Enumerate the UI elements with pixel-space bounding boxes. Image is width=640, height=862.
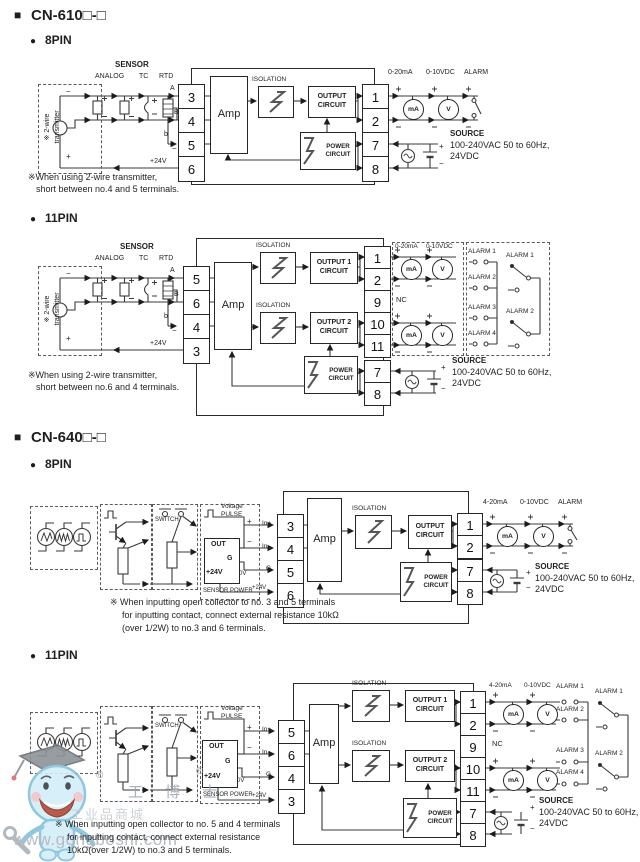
rtd-a-label: A — [170, 267, 175, 275]
output1-circuit-block: OUTPUT 1 CIRCUIT — [310, 252, 358, 284]
terminal-1: 1 — [362, 84, 389, 110]
terminal-3: 3 — [183, 338, 210, 364]
alarm2-contact-label: ALARM 2 — [468, 274, 496, 281]
terminal-6: 6 — [183, 290, 210, 316]
ma-meter: mA — [503, 770, 524, 791]
sensor-label: SENSOR — [115, 60, 149, 69]
isolation-zigzag-icon — [360, 754, 382, 778]
isolation-zigzag-icon — [267, 316, 289, 340]
terminal-10: 10 — [364, 312, 391, 336]
rtd-b-label: B — [174, 291, 179, 299]
source-line2: 24VDC — [452, 378, 481, 388]
in-plus-label: In+ — [262, 726, 271, 733]
polarity-plus: + — [247, 517, 252, 526]
power-circuit-block: POWER CIRCUIT — [403, 798, 457, 838]
cn640-square-marker: ■ — [14, 431, 21, 445]
transmitter-line2: transmitter — [53, 272, 63, 346]
terminal-6: 6 — [178, 156, 205, 182]
v-meter: V — [438, 99, 459, 120]
isolation-label: ISOLATION — [252, 76, 286, 83]
ma-meter: mA — [497, 526, 518, 547]
ma-meter: mA — [403, 99, 424, 120]
battery-icon — [514, 812, 528, 834]
terminal-7: 7 — [362, 132, 389, 158]
v-meter: V — [537, 770, 558, 791]
power-circuit-label: POWER CIRCUIT — [325, 367, 357, 383]
alarm-output-label: ALARM — [558, 499, 582, 507]
terminal-5: 5 — [278, 720, 305, 745]
power-circuit-label: POWER CIRCUIT — [421, 574, 451, 590]
power-zigzag-icon — [404, 801, 424, 835]
current-output-label: 0-20mA — [395, 243, 418, 250]
note-line2: short between no.4 and 5 terminals. — [36, 184, 179, 194]
alarm1-contact-label: ALARM 1 — [468, 248, 496, 255]
two-wire-transmitter-label: ※ 2-wire transmitter — [43, 272, 62, 346]
polarity-minus: − — [441, 384, 446, 393]
terminal-2: 2 — [362, 108, 389, 134]
g-label: G — [227, 555, 232, 563]
two-wire-transmitter-label: ※ 2-wire transmitter — [43, 90, 62, 164]
note-line1: ※ When inputting open collector to no. 3… — [110, 597, 335, 607]
plus24v-box-label: +24V — [204, 773, 221, 781]
source-line2: 24VDC — [539, 818, 568, 828]
terminal-7: 7 — [457, 559, 483, 583]
polarity-minus: − — [439, 159, 444, 168]
terminal-9: 9 — [460, 735, 486, 759]
terminal-5: 5 — [183, 266, 210, 292]
isolation-label: ISOLATION — [256, 302, 290, 309]
source-title: SOURCE — [452, 356, 486, 365]
power-zigzag-icon — [305, 359, 325, 391]
terminal-6: 6 — [278, 743, 305, 768]
terminal-1: 1 — [457, 513, 483, 537]
bullet-icon: ● — [30, 36, 36, 48]
amp-block: Amp — [307, 498, 342, 582]
isolation-zigzag-icon — [267, 256, 289, 280]
alarm2-contact-label: ALARM 2 — [556, 706, 584, 713]
rtd-label: RTD — [159, 73, 173, 81]
v-meter: V — [537, 704, 558, 725]
alarm-output-label: ALARM — [464, 69, 488, 77]
terminal-9: 9 — [364, 290, 391, 314]
isolation-label: ISOLATION — [352, 740, 386, 747]
transmitter-line1: ※ 2-wire — [43, 272, 53, 346]
g-label: G — [225, 758, 230, 766]
cn640-8pin-heading: 8PIN — [45, 458, 72, 472]
isolation-zigzag-icon — [265, 90, 287, 114]
note-line1: ※When using 2-wire transmitter, — [28, 370, 157, 380]
alarm1-contact-label: ALARM 1 — [556, 683, 584, 690]
terminal-5: 5 — [178, 132, 205, 158]
output-circuit-block: OUTPUT CIRCUIT — [308, 86, 356, 118]
switch-label: SWITCH — [155, 723, 179, 730]
plus24v-box-label: +24V — [206, 569, 223, 577]
isolation-block — [260, 312, 296, 344]
terminal-8: 8 — [457, 581, 483, 605]
note-line2: short between no.6 and 4 terminals. — [36, 382, 179, 392]
plus24v-pin-label: +24V — [252, 793, 266, 800]
note-line1: ※When using 2-wire transmitter, — [28, 172, 157, 182]
polarity-minus: − — [526, 583, 531, 592]
source-line1: 100-240VAC 50 to 60Hz, — [539, 807, 638, 817]
v-meter: V — [432, 259, 453, 280]
voltage-pulse-label-line2: PULSE — [221, 713, 242, 720]
power-circuit-label: POWER CIRCUIT — [424, 810, 456, 826]
power-zigzag-icon — [401, 565, 421, 599]
cn610-square-marker: ■ — [14, 9, 21, 23]
polarity-plus: + — [247, 723, 252, 732]
g-pin-label: G — [266, 771, 271, 778]
rtd-a-label: A — [170, 85, 175, 93]
open-collector-dashed-box — [100, 504, 152, 590]
plus24v-label: +24V — [150, 158, 167, 166]
rtd-b-label: B — [174, 109, 179, 117]
terminal-10: 10 — [460, 757, 486, 781]
cn610-11pin-heading: 11PIN — [45, 212, 78, 226]
rtd-b-lower-label: b — [164, 131, 168, 139]
polarity-plus: + — [530, 803, 535, 812]
wiring-diagram-page: ■ CN-610□-□ ● 8PIN ※ 2-wire transmitter … — [0, 0, 640, 862]
isolation-block — [258, 86, 294, 118]
zero-v-label: 0V — [239, 571, 246, 578]
source-line1: 100-240VAC 50 to 60Hz, — [450, 140, 549, 150]
isolation-block — [355, 515, 392, 549]
zero-v-label: 0V — [237, 778, 244, 785]
polarity-plus: + — [526, 568, 531, 577]
terminal-11: 11 — [364, 334, 391, 358]
v-meter: V — [533, 526, 554, 547]
v-meter: V — [432, 325, 453, 346]
rtd-b-lower-label: b — [164, 313, 168, 321]
power-circuit-block: POWER CIRCUIT — [304, 356, 358, 394]
signal-sources-dashed-box — [30, 506, 98, 570]
cn640-11pin-heading: 11PIN — [45, 649, 78, 663]
source-line2: 24VDC — [450, 151, 479, 161]
current-output-label: 4-20mA — [483, 499, 508, 507]
in-minus-label: In- — [262, 749, 270, 756]
alarm3-contact-label: ALARM 3 — [556, 747, 584, 754]
amp-block: Amp — [309, 704, 339, 784]
polarity-minus: − — [247, 743, 252, 752]
battery-icon — [510, 570, 524, 592]
output2-circuit-block: OUTPUT 2 CIRCUIT — [405, 750, 455, 782]
terminal-8: 8 — [362, 156, 389, 182]
amp-block: Amp — [210, 76, 248, 154]
note-line2: for inputting contact, connect external … — [67, 832, 260, 842]
tc-label: TC — [139, 73, 148, 81]
source-title: SOURCE — [535, 562, 569, 571]
terminal-2: 2 — [364, 268, 391, 292]
isolation-block — [260, 252, 296, 284]
in-minus-label: In- — [262, 543, 270, 550]
terminal-4: 4 — [277, 537, 304, 562]
battery-icon — [427, 371, 441, 393]
polarity-minus: − — [247, 537, 252, 546]
power-circuit-block: POWER CIRCUIT — [400, 562, 452, 602]
voltage-pulse-label-line1: Voltage — [221, 503, 243, 510]
source-line1: 100-240VAC 50 to 60Hz, — [535, 573, 634, 583]
polarity-minus: − — [530, 824, 535, 833]
terminal-3: 3 — [277, 514, 304, 539]
alarm-relay-icons — [596, 702, 628, 792]
terminal-8: 8 — [364, 382, 391, 406]
transmitter-line2: transmitter — [53, 90, 63, 164]
isolation-zigzag-icon — [363, 519, 385, 545]
analog-label: ANALOG — [95, 255, 124, 263]
note-line3: 10kΩ(over 1/2W) to no.3 and 5 terminals. — [67, 845, 232, 855]
in-plus-label: In+ — [262, 520, 271, 527]
alarm4-contact-label: ALARM 4 — [556, 769, 584, 776]
alarm4-contact-label: ALARM 4 — [468, 330, 496, 337]
bullet-icon: ● — [30, 460, 36, 472]
cn640-title: CN-640□-□ — [31, 429, 106, 446]
terminal-2: 2 — [460, 713, 486, 737]
alarm2-relay-label: ALARM 2 — [595, 750, 623, 757]
note-line3: (over 1/2W) to no.3 and 6 terminals. — [122, 623, 266, 633]
ma-meter: mA — [503, 704, 524, 725]
shop-watermark-text: 工业品商城 — [70, 808, 145, 823]
polarity-minus: − — [172, 144, 177, 153]
terminal-7: 7 — [364, 360, 391, 384]
current-output-label: 4-20mA — [489, 682, 512, 689]
power-zigzag-icon — [301, 135, 321, 167]
source-title: SOURCE — [450, 129, 484, 138]
polarity-minus: − — [66, 269, 71, 278]
polarity-plus: + — [439, 142, 444, 151]
voltage-output-label: 0-10VDC — [520, 499, 549, 507]
registered-mark: ® — [96, 770, 103, 782]
isolation-block — [352, 690, 390, 722]
alarm1-relay-label: ALARM 1 — [506, 252, 534, 259]
out-label: OUT — [209, 743, 224, 751]
alarm2-relay-label: ALARM 2 — [506, 308, 534, 315]
plus24v-pin-label: +24V — [252, 585, 266, 592]
current-output-label: 0-20mA — [388, 69, 413, 77]
output2-circuit-block: OUTPUT 2 CIRCUIT — [310, 312, 358, 344]
brand-calligraphy-text: 工 博 士 — [128, 784, 226, 801]
analog-label: ANALOG — [95, 73, 124, 81]
source-line1: 100-240VAC 50 to 60Hz, — [452, 367, 551, 377]
polarity-minus: − — [172, 326, 177, 335]
terminal-3: 3 — [278, 789, 305, 814]
voltage-output-label: 0-10VDC — [426, 243, 453, 250]
terminal-4: 4 — [278, 766, 305, 791]
ma-meter: mA — [401, 259, 422, 280]
nc-label: NC — [396, 296, 407, 305]
terminal-4: 4 — [178, 108, 205, 134]
amp-block: Amp — [214, 262, 252, 350]
switch-label: SWITCH — [155, 517, 179, 524]
output-circuit-block: OUTPUT CIRCUIT — [408, 515, 452, 549]
isolation-block — [352, 750, 390, 782]
sensor-power-label: SENSOR POWER — [203, 588, 253, 595]
rtd-label: RTD — [159, 255, 173, 263]
isolation-label: ISOLATION — [256, 242, 290, 249]
terminal-5: 5 — [277, 560, 304, 585]
polarity-plus: + — [441, 363, 446, 372]
isolation-label: ISOLATION — [352, 680, 386, 687]
terminal-2: 2 — [457, 535, 483, 559]
polarity-plus: + — [66, 152, 71, 161]
registered-mark: ® — [196, 766, 203, 778]
voltage-output-label: 0-10VDC — [524, 682, 551, 689]
isolation-zigzag-icon — [360, 694, 382, 718]
voltage-output-label: 0-10VDC — [426, 69, 455, 77]
terminal-3: 3 — [178, 84, 205, 110]
power-circuit-block: POWER CIRCUIT — [300, 132, 356, 170]
terminal-4: 4 — [183, 314, 210, 340]
transmitter-line1: ※ 2-wire — [43, 90, 53, 164]
isolation-label: ISOLATION — [352, 505, 386, 512]
alarm3-contact-label: ALARM 3 — [468, 304, 496, 311]
polarity-plus: + — [66, 334, 71, 343]
sensor-label: SENSOR — [120, 242, 154, 251]
cn610-title: CN-610□-□ — [31, 7, 106, 24]
alarm1-relay-label: ALARM 1 — [595, 688, 623, 695]
nc-label: NC — [492, 740, 503, 749]
note-line2: for inputting contact, connect external … — [122, 610, 339, 620]
out-label: OUT — [211, 541, 226, 549]
terminal-1: 1 — [460, 691, 486, 715]
terminal-1: 1 — [364, 246, 391, 270]
source-title: SOURCE — [539, 796, 573, 805]
tc-label: TC — [139, 255, 148, 263]
output1-circuit-block: OUTPUT 1 CIRCUIT — [405, 690, 455, 722]
terminal-11: 11 — [460, 779, 486, 803]
bullet-icon: ● — [30, 214, 36, 226]
terminal-7: 7 — [460, 801, 486, 825]
bullet-icon: ● — [30, 651, 36, 663]
polarity-minus: − — [66, 87, 71, 96]
terminal-8: 8 — [460, 823, 486, 847]
source-line2: 24VDC — [535, 584, 564, 594]
voltage-pulse-label-line2: PULSE — [221, 511, 242, 518]
plus24v-label: +24V — [150, 340, 167, 348]
ma-meter: mA — [401, 325, 422, 346]
voltage-pulse-label-line1: Voltage — [221, 705, 243, 712]
cn610-8pin-heading: 8PIN — [45, 34, 72, 48]
power-circuit-label: POWER CIRCUIT — [321, 143, 355, 159]
g-pin-label: G — [266, 565, 271, 572]
